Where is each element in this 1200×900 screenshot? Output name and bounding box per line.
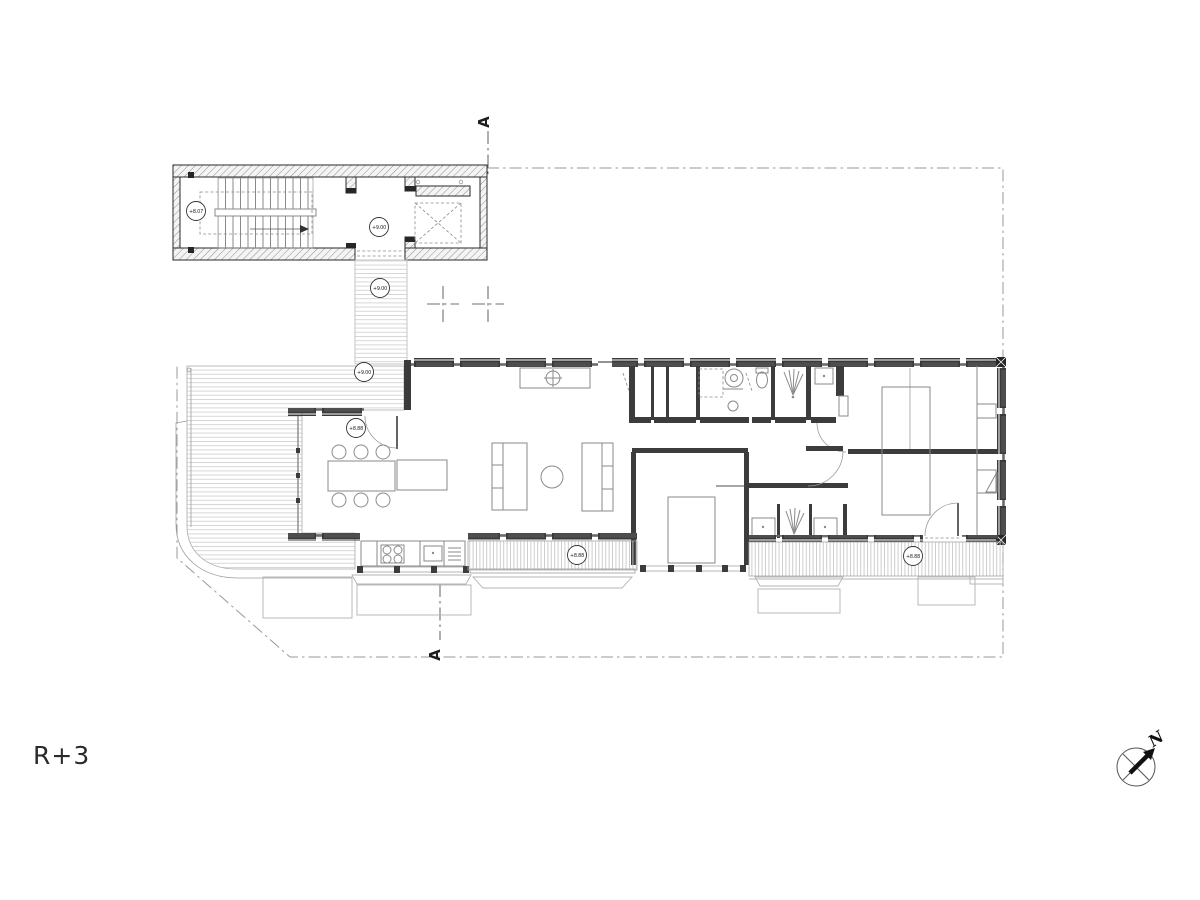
sink-drain	[824, 526, 826, 528]
east-south-sill	[962, 535, 998, 542]
kitchen	[357, 541, 469, 573]
bathroom-north-wall	[744, 483, 848, 488]
service-south-wall	[811, 417, 836, 423]
stair-flight-upper	[218, 178, 313, 209]
sofa-left	[492, 443, 527, 510]
mullion	[296, 498, 300, 503]
mullion	[394, 566, 400, 573]
column	[188, 172, 194, 178]
level-marker-landing: +9.00	[370, 218, 389, 237]
section-line: A A	[426, 116, 504, 661]
sofa-left-back	[492, 443, 503, 510]
living-southwest-sill	[288, 533, 360, 541]
roof-below	[357, 585, 471, 615]
walkway	[355, 260, 407, 364]
closet-door-dashed	[623, 373, 629, 391]
stair-handrail	[215, 209, 316, 216]
mullion	[722, 565, 728, 572]
partition	[771, 366, 775, 420]
stair-flight-lower	[218, 216, 313, 248]
stair-block	[173, 165, 487, 260]
level-marker-value: +8.88	[570, 553, 584, 559]
burner	[394, 546, 402, 554]
wall-end-cap	[346, 243, 356, 248]
service-rooms	[623, 366, 848, 452]
east-balcony	[749, 542, 1003, 579]
mullion	[640, 565, 646, 572]
east-bedrooms	[848, 366, 998, 538]
service-south-wall	[700, 417, 749, 423]
wardrobe-shelf	[977, 470, 996, 493]
north-arrow: N	[1117, 726, 1169, 786]
toilet-bowl	[757, 372, 768, 388]
level-marker-value: +8.88	[906, 554, 920, 560]
dining-table	[328, 461, 395, 491]
partition	[806, 366, 811, 420]
stair-west-wall	[173, 177, 180, 253]
mullion	[431, 566, 437, 573]
floor-label: R+3	[33, 741, 90, 770]
elevator-zone	[405, 177, 487, 260]
hall-door-swing	[808, 451, 843, 486]
balcony-deck	[468, 541, 637, 570]
burner	[394, 555, 402, 563]
small-basin	[728, 401, 738, 411]
cooktop	[381, 545, 404, 563]
level-marker-deck: +9.00	[355, 363, 374, 382]
partition	[843, 504, 847, 538]
wardrobe-detail	[986, 472, 997, 492]
partition	[651, 366, 654, 420]
awning-below	[352, 575, 471, 584]
north-window-band-west	[410, 358, 598, 367]
staircase	[200, 178, 316, 248]
bath-east-south-sill	[749, 535, 923, 542]
kitchen-island	[397, 460, 447, 490]
dining-set	[328, 445, 447, 507]
level-marker-value: +9.00	[373, 286, 387, 292]
shower-spray	[786, 508, 804, 537]
service-south-wall	[752, 417, 771, 423]
level-marker-value: +9.00	[372, 225, 386, 231]
fixing-dot	[416, 180, 420, 184]
bathroom	[752, 504, 847, 538]
level-marker-south-balcony: +8.88	[568, 546, 587, 565]
level-marker-stair: +8.07	[187, 202, 206, 221]
awning-below	[473, 577, 632, 588]
lounge-set	[492, 443, 613, 511]
chair	[332, 493, 346, 507]
service-south-wall	[775, 417, 806, 423]
toilet	[756, 368, 768, 388]
chair	[354, 445, 368, 459]
elevator-shaft-x	[415, 203, 461, 243]
level-marker-east-balcony: +8.88	[904, 547, 923, 566]
wall-end-cap	[405, 186, 415, 191]
wardrobe-shelf	[977, 404, 996, 418]
section-label-bottom: A	[426, 649, 444, 661]
level-marker-value: +8.88	[349, 426, 363, 432]
bed-middle-bedroom	[668, 497, 715, 563]
spray-line	[790, 509, 794, 534]
entry-door-swing	[365, 416, 397, 448]
awning-below	[755, 577, 843, 586]
living-south-sill	[468, 533, 637, 541]
mullion	[296, 448, 300, 453]
floor-plan-sheet: A A	[0, 0, 1200, 900]
washer-appliance	[699, 369, 723, 397]
level-marker-living: +8.88	[347, 419, 366, 438]
hall-door-leaf	[806, 446, 843, 451]
lower-level-outlines	[263, 575, 1003, 618]
section-jog-crosshairs	[427, 286, 504, 322]
wash-basin-drain	[731, 375, 738, 382]
chair	[376, 445, 390, 459]
closet	[839, 396, 848, 416]
roof-below	[263, 577, 352, 618]
dividing-wall	[848, 449, 998, 454]
sofa-right-back	[602, 443, 613, 511]
chair	[332, 445, 346, 459]
fixing-dot	[459, 180, 463, 184]
floor-plan-drawing: A A	[0, 0, 1200, 900]
chair	[354, 493, 368, 507]
living-north-sill	[288, 408, 364, 416]
level-marker-value: +8.07	[189, 209, 203, 215]
walkway-deck	[355, 260, 407, 364]
north-window-band-east	[612, 358, 1003, 367]
stair-landing	[357, 251, 406, 256]
service-west-wall	[629, 366, 635, 422]
mullion	[357, 566, 363, 573]
shower-spray	[784, 369, 803, 398]
elevator-beam	[416, 186, 470, 196]
elevator-south-wall	[405, 248, 487, 260]
northwest-corner-post	[404, 360, 411, 410]
service-south-wall	[629, 417, 651, 423]
wall-end-cap	[405, 237, 415, 242]
sideboard	[520, 368, 590, 388]
level-marker-walkway: +9.00	[371, 279, 390, 298]
wash-basin	[725, 369, 743, 387]
spray-line	[794, 513, 804, 534]
sink-drain	[432, 552, 434, 554]
stair-north-wall	[173, 165, 487, 177]
shower-partition	[809, 504, 812, 538]
kitchen-south-wall	[357, 566, 469, 573]
sink-drain	[823, 375, 825, 377]
elevator-shaft-x	[415, 203, 461, 243]
partition	[666, 366, 669, 420]
balcony-deck	[749, 542, 1003, 576]
mullion	[296, 473, 300, 478]
mullion	[668, 565, 674, 572]
chair	[376, 493, 390, 507]
column	[188, 247, 194, 253]
mullion	[696, 565, 702, 572]
bedroom2-north-wall	[632, 448, 748, 453]
mullion	[740, 565, 746, 572]
roof-below	[758, 589, 840, 613]
east-window-band	[997, 362, 1006, 542]
section-label-top: A	[475, 116, 493, 128]
south-balcony	[468, 541, 637, 573]
spray-line	[793, 374, 803, 395]
shower-partition	[777, 504, 780, 538]
wc-door-dashed	[746, 373, 752, 391]
cooktop-frame	[381, 545, 404, 563]
partition-stub	[836, 366, 844, 396]
spray-line	[786, 511, 794, 534]
wall-end-cap	[346, 188, 356, 193]
stair-south-wall	[173, 248, 355, 260]
terrace-deck	[176, 366, 404, 578]
shower-drain	[792, 396, 795, 399]
burner	[383, 555, 391, 563]
roof-below	[918, 577, 975, 605]
coffee-table	[541, 466, 563, 488]
level-marker-value: +9.00	[357, 370, 371, 376]
service-south-wall	[654, 417, 696, 423]
sofa-right	[582, 443, 613, 511]
burner	[383, 546, 391, 554]
elevator-shaft	[415, 203, 461, 243]
sink-drain	[762, 526, 764, 528]
bedroom2-east-wall	[744, 452, 749, 565]
north-label: N	[1144, 726, 1169, 751]
